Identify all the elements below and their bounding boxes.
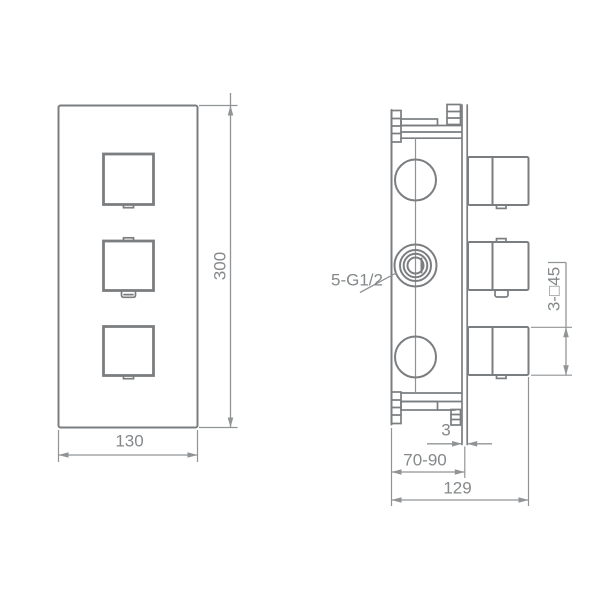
side-handle-2 <box>468 239 529 297</box>
bottom-rail-lug <box>401 402 438 411</box>
plate-thickness-label: 3 <box>441 422 450 439</box>
square-3-bottom-tab <box>124 376 134 379</box>
front-height-label: 300 <box>211 252 228 280</box>
top-bracket-tab <box>447 105 461 125</box>
side-handle-1 <box>468 157 529 208</box>
front-handle-square-2 <box>104 241 154 291</box>
square-2-top-tab <box>124 238 134 241</box>
front-handle-square-3 <box>104 327 154 376</box>
front-view <box>59 106 198 428</box>
install-depth-label: 70-90 <box>403 451 446 468</box>
bottom-bracket-tab <box>451 410 461 426</box>
side-handle-3 <box>468 327 529 378</box>
front-width-label: 130 <box>115 433 143 450</box>
front-handle-square-1 <box>104 154 154 205</box>
top-rail-lug <box>401 119 438 126</box>
drawing-linework <box>0 0 600 600</box>
side-view <box>360 105 529 445</box>
ports-label: 5-G1/2 <box>331 272 383 289</box>
square-1-bottom-tab <box>124 205 134 208</box>
handle-square-label: 3-□45 <box>545 266 562 310</box>
technical-drawing-canvas: 130 300 5-G1/2 3-□45 3 70-90 129 <box>0 0 600 600</box>
total-depth-label: 129 <box>443 479 471 496</box>
